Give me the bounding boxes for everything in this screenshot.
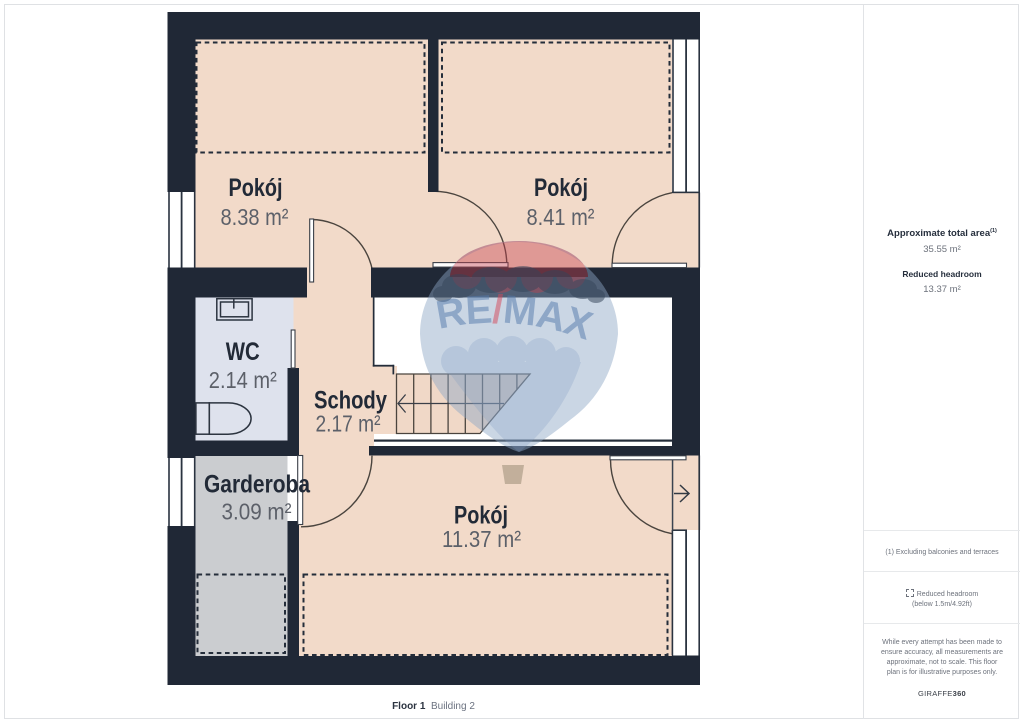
svg-text:11.37 m²: 11.37 m² bbox=[442, 526, 521, 552]
svg-text:Pokój: Pokój bbox=[534, 174, 588, 202]
svg-text:8.38 m²: 8.38 m² bbox=[221, 204, 289, 230]
svg-text:Garderoba: Garderoba bbox=[204, 471, 311, 499]
svg-text:8.41 m²: 8.41 m² bbox=[527, 204, 595, 230]
svg-text:3.09 m²: 3.09 m² bbox=[222, 499, 292, 525]
svg-text:WC: WC bbox=[226, 338, 260, 366]
svg-text:2.14 m²: 2.14 m² bbox=[209, 367, 277, 393]
svg-text:2.17 m²: 2.17 m² bbox=[316, 411, 381, 437]
svg-text:Pokój: Pokój bbox=[229, 174, 283, 202]
